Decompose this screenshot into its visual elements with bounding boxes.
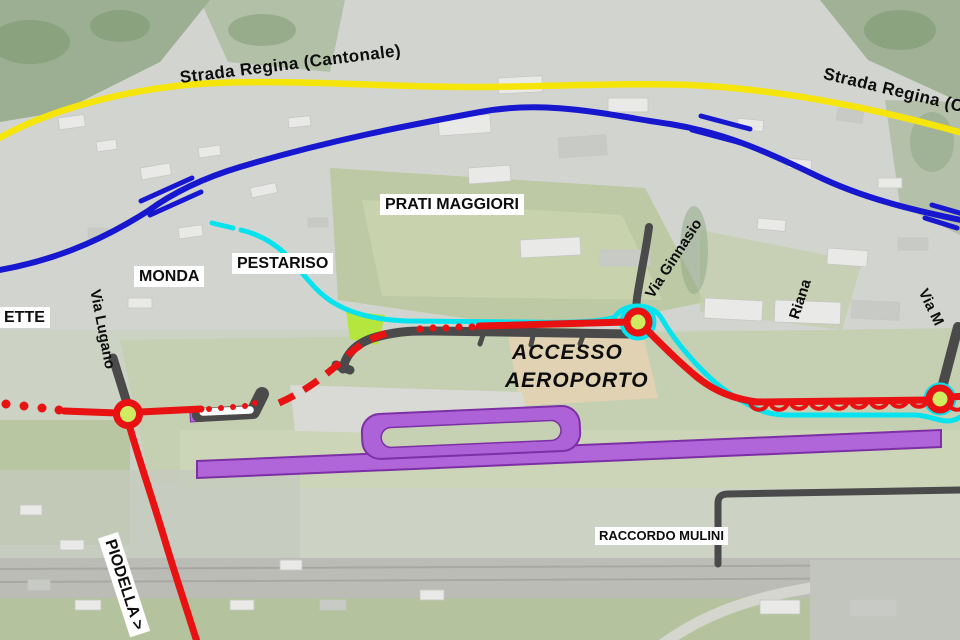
road-raccordo-mulini [718,490,960,564]
label-accesso-line1: ACCESSO [512,341,623,365]
label-prati-maggiori: PRATI MAGGIORI [380,194,524,215]
label-accesso-line2: AEROPORTO [505,369,649,393]
red-solid-west-a [64,411,117,413]
roundabout-airport-access [627,311,649,333]
label-pestariso: PESTARISO [232,253,333,274]
aerial-project-map: Strada Regina (Cantonale) Strada Regina … [0,0,960,640]
label-monda: MONDA [134,266,204,287]
label-ette: ETTE [0,307,50,328]
taxiway-loop [361,405,581,459]
roundabout-west [117,403,140,426]
roundabout-east [929,388,951,410]
red-solid-to-roundabout2 [479,322,627,326]
label-raccordo-mulini: RACCORDO MULINI [595,527,728,545]
red-solid-west-b [140,409,201,412]
map-overlay-svg [0,0,960,640]
